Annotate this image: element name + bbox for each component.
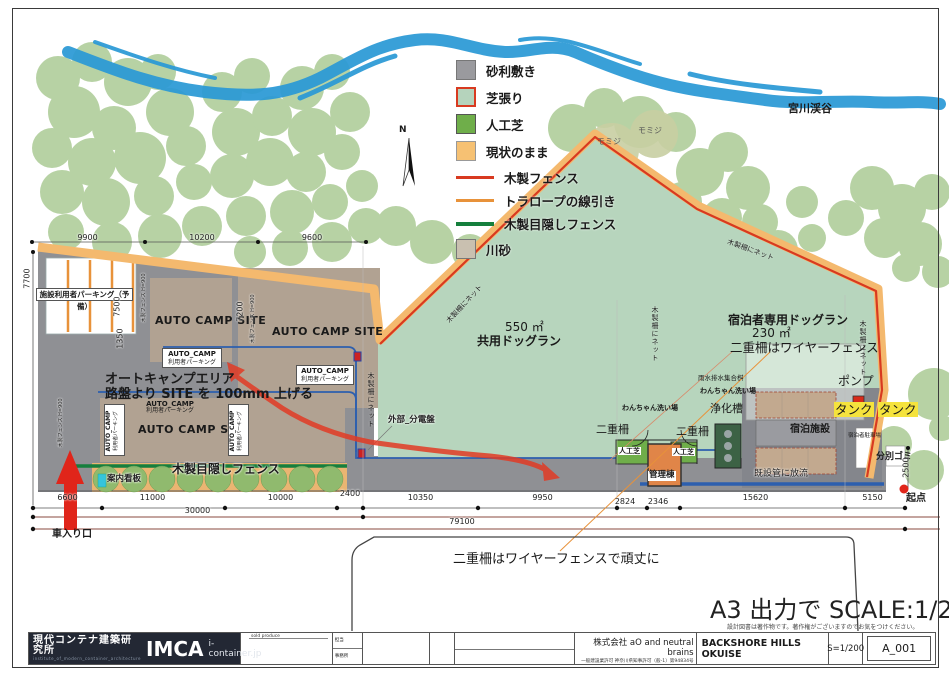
dimension-label: 10200	[173, 233, 231, 242]
compass-n-label: N	[399, 125, 407, 135]
double-fence-label: 二重柵	[596, 424, 629, 437]
guest-parking-label: 宿泊者駐車場	[848, 433, 881, 439]
dimension-label: 10000	[253, 493, 308, 502]
camp-area-note: 路盤より SITE を 100mm 上げる	[105, 388, 313, 403]
dimension-label: 10350	[393, 493, 448, 502]
camp-parking-sign-vertical: AUTO_CAMP 利用者パーキング	[228, 404, 249, 456]
legend-item: 木製目隠しフェンス	[456, 214, 636, 233]
legend-item: 芝張り	[456, 87, 636, 107]
title-block: 現代コンテナ建築研究所 institute_of_modern_containe…	[28, 632, 936, 665]
momiji-label: モミジ	[597, 137, 621, 146]
septic-label: 浄化槽	[710, 403, 743, 416]
empty-cell	[430, 633, 455, 664]
camp-parking-sign-vertical: AUTO_CAMP 利用者パーキング	[104, 404, 125, 456]
guest-dogrun-area: 230 ㎡	[752, 327, 791, 341]
dimension-label: 9950	[515, 493, 570, 502]
camp-area-note: オートキャンプエリア	[105, 373, 235, 388]
project-cell: BACKSHORE HILLS OKUISE	[697, 633, 830, 664]
company-license: 一般建設業許可 神奈川県知事許可（般-1）第94834号	[575, 658, 694, 664]
legend-item: 砂利敷き	[456, 60, 636, 80]
dog-wash-label: わんちゃん洗い場	[700, 387, 756, 395]
turf-pen-label: 人工芝	[618, 447, 641, 455]
privacy-fence-swatch	[456, 222, 494, 226]
legend-item: 川砂	[456, 239, 636, 259]
auto-camp-site-label: AUTO CAMP SITE	[272, 326, 383, 339]
artificial-turf-swatch	[456, 114, 476, 134]
momiji-label: モミジ	[638, 126, 662, 135]
dimension-label: 7200	[235, 292, 244, 332]
office-subtitle: institute_of_modern_container_architectu…	[33, 656, 141, 661]
pump-label: ポンプ	[838, 375, 874, 389]
office-label: 事務所	[333, 649, 362, 665]
tank-label: タンク	[878, 403, 918, 417]
discharge-label: 既設管に放流	[754, 469, 808, 479]
legend-item: トラロープの線引き	[456, 191, 636, 210]
rainwater-label: 雨水排水集合桝	[698, 375, 744, 382]
dog-wash-label: わんちゃん洗い場	[622, 404, 678, 412]
fence-height-label: 木製フェンス H=900	[59, 393, 65, 453]
dimension-label: 2500	[901, 448, 910, 488]
company-cell: 株式会社 aO and neutral brains 一般建設業許可 神奈川県知…	[575, 633, 697, 664]
river-label: 宮川渓谷	[788, 103, 832, 116]
fence-height-label: 木製フェンス H=900	[251, 289, 257, 349]
office-name: 現代コンテナ建築研究所	[33, 636, 141, 656]
fence-net-label: 木製柵にネット	[367, 372, 375, 428]
fence-net-label: 木製柵にネット	[651, 306, 659, 362]
dimension-label: 5150	[845, 493, 900, 502]
tank-label: タンク	[834, 403, 874, 417]
dimension-label: 79100	[432, 517, 492, 526]
dimension-label: 1350	[115, 319, 124, 359]
office-logo-cell: 現代コンテナ建築研究所 institute_of_modern_containe…	[29, 633, 241, 664]
produce-cell: sold produce	[241, 633, 333, 664]
wooden-fence-swatch	[456, 176, 494, 179]
entrance-label: 車入り口	[52, 529, 92, 541]
distribution-board-label: 外部_分電盤	[388, 416, 435, 426]
empty-cell	[455, 633, 575, 664]
dimension-label: 2346	[638, 497, 678, 506]
dimension-label: 15620	[728, 493, 783, 502]
scale-cell: S=1/200	[829, 633, 863, 664]
scale-note: A3 出力で SCALE:1/200	[710, 597, 949, 625]
camp-parking-sign: AUTO_CAMP 利用者パーキング	[162, 348, 222, 368]
shared-dogrun-area: 550 ㎡	[505, 321, 544, 335]
legend: 砂利敷き 芝張り 人工芝 現状のまま 木製フェンス トラロープの線引き 木製目隠…	[456, 60, 636, 266]
privacy-fence-label: 木製目隠しフェンス	[172, 463, 280, 477]
river-sand-swatch	[456, 239, 476, 259]
dimension-label: 9900	[60, 233, 115, 242]
as-is-swatch	[456, 141, 476, 161]
dimension-label: 11000	[125, 493, 180, 502]
legend-item: 人工芝	[456, 114, 636, 134]
dimension-label: 6600	[40, 493, 95, 502]
sheet-number-cell: A_001	[863, 633, 935, 664]
dimension-label: 7700	[22, 259, 31, 299]
double-fence-wire-note: 二重柵はワイヤーフェンス	[730, 341, 879, 355]
rope-line-swatch	[456, 199, 494, 202]
camp-parking-sign: AUTO_CAMP 利用者パーキング	[296, 365, 354, 385]
dimension-label: 30000	[170, 506, 225, 515]
empty-cell	[363, 633, 431, 664]
lodging-label: 宿泊施設	[790, 424, 830, 436]
admin-building-label: 管理棟	[648, 471, 676, 481]
info-sign-label: 案内看板	[107, 475, 141, 485]
legend-item: 木製フェンス	[456, 168, 636, 187]
sheet-number: A_001	[867, 636, 931, 661]
office-logo: IMCA	[146, 639, 204, 659]
origin-label: 起点	[906, 493, 926, 505]
double-fence-label: 二重柵	[676, 426, 709, 439]
dimension-label: 2400	[330, 489, 370, 498]
fence-height-label: 木製フェンス H=900	[142, 268, 148, 328]
staff-cell: 担当 事務所	[333, 633, 363, 664]
turf-pen-label: 人工芝	[672, 448, 695, 456]
shared-dogrun-label: 共用ドッグラン	[477, 335, 561, 349]
gravel-swatch	[456, 60, 476, 80]
site-plan-sheet: 宮川渓谷 砂利敷き 芝張り 人工芝 現状のまま 木製フェンス トラロープの線引き…	[0, 0, 949, 675]
dimension-label: 9600	[283, 233, 341, 242]
staff-label: 担当	[333, 633, 362, 649]
company-name: 株式会社 aO and neutral brains	[575, 636, 694, 658]
sturdy-fence-note: 二重柵はワイヤーフェンスで頑丈に	[453, 553, 660, 568]
turf-swatch	[456, 87, 476, 107]
copyright-note: 設計図書は著作物です。著作権がございますのでお気をつけください。	[727, 625, 918, 632]
